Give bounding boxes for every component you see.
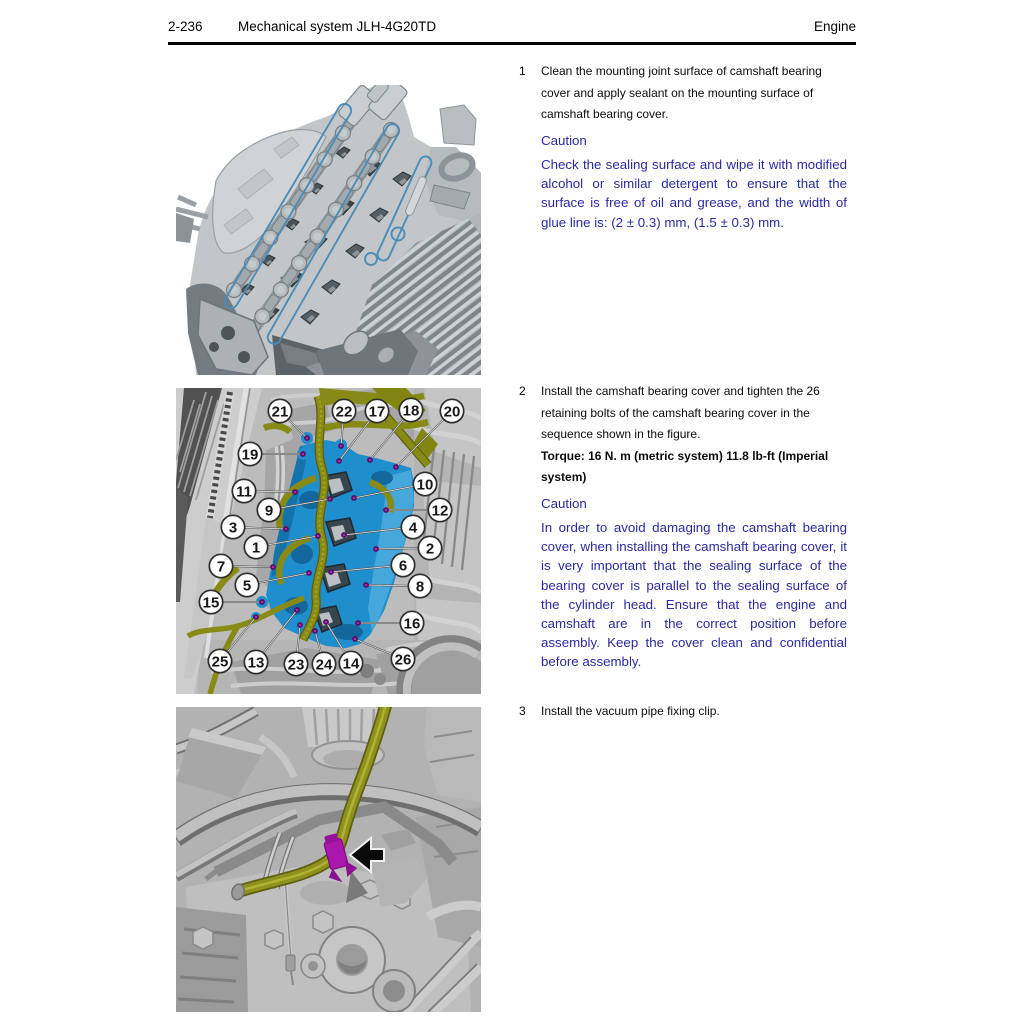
- svg-text:3: 3: [229, 519, 237, 536]
- svg-text:8: 8: [416, 578, 424, 595]
- svg-text:19: 19: [242, 446, 259, 463]
- svg-text:5: 5: [243, 577, 251, 594]
- svg-text:15: 15: [203, 594, 220, 611]
- svg-text:7: 7: [217, 558, 225, 575]
- svg-text:9: 9: [265, 502, 273, 519]
- svg-text:14: 14: [343, 655, 360, 672]
- svg-text:26: 26: [395, 651, 412, 668]
- svg-text:25: 25: [212, 653, 229, 670]
- svg-text:2: 2: [426, 540, 434, 557]
- svg-text:18: 18: [403, 402, 420, 419]
- svg-text:23: 23: [288, 656, 305, 673]
- svg-text:21: 21: [272, 403, 289, 420]
- svg-text:13: 13: [248, 654, 265, 671]
- svg-text:6: 6: [399, 557, 407, 574]
- svg-text:24: 24: [316, 656, 333, 673]
- svg-text:10: 10: [417, 476, 434, 493]
- svg-text:22: 22: [336, 403, 353, 420]
- svg-text:11: 11: [236, 483, 252, 500]
- svg-text:4: 4: [409, 519, 418, 536]
- svg-text:1: 1: [252, 539, 260, 556]
- svg-text:16: 16: [404, 615, 421, 632]
- svg-text:12: 12: [432, 502, 449, 519]
- svg-text:17: 17: [369, 403, 386, 420]
- svg-text:20: 20: [444, 403, 461, 420]
